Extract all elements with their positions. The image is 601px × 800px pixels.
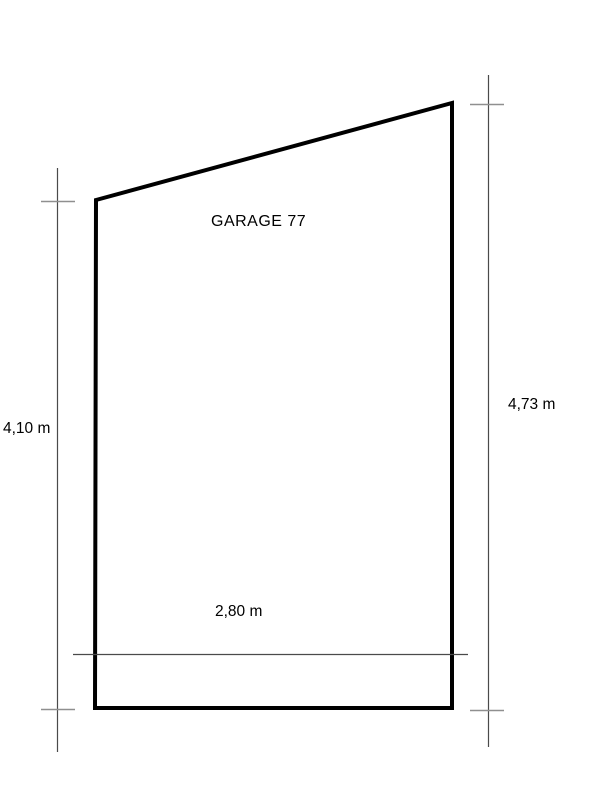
garage-outline [95,103,452,708]
floorplan-drawing: GARAGE 77 4,10 m 4,73 m 2,80 m [0,0,601,800]
floorplan-canvas: GARAGE 77 4,10 m 4,73 m 2,80 m [0,0,601,800]
room-label: GARAGE 77 [211,213,306,230]
left-dimension-label: 4,10 m [3,420,50,437]
width-dimension-label: 2,80 m [215,603,262,620]
right-dimension-label: 4,73 m [508,396,555,413]
